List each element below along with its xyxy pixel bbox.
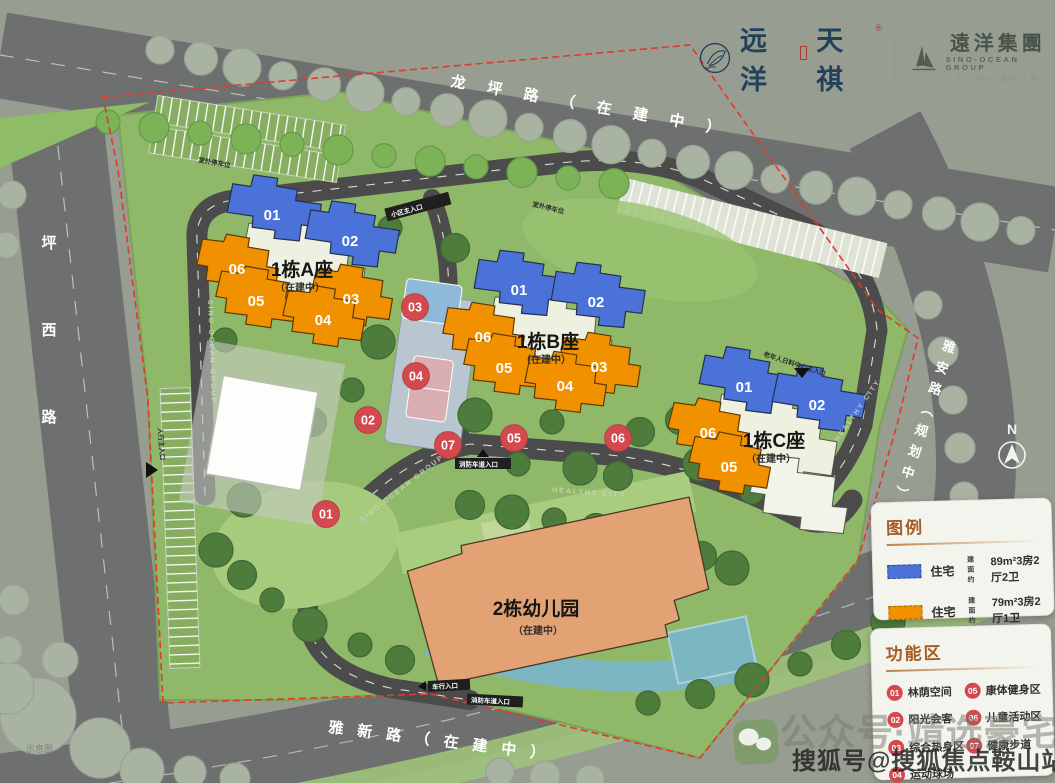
logo-divider: [894, 35, 895, 81]
tree: [392, 88, 420, 116]
leaf-logo-icon: [698, 38, 732, 78]
cluster-b-status: （在建中）: [521, 353, 571, 366]
unit-label: 02: [342, 233, 359, 250]
project-logo: 远洋 天祺 ®: [698, 19, 882, 97]
group-name: 遠洋集團: [950, 33, 1046, 56]
unit-label: 03: [343, 291, 360, 308]
tree: [188, 121, 212, 145]
tree: [486, 758, 514, 783]
legend-rule: [887, 540, 1040, 546]
tree: [715, 151, 753, 189]
tree: [441, 234, 470, 263]
tree: [340, 378, 364, 402]
unit-label: 01: [736, 379, 753, 396]
registered-mark: ®: [875, 23, 882, 33]
compass-label: N: [1007, 421, 1017, 437]
cluster-c-name: 1栋C座: [743, 429, 805, 452]
tree: [293, 608, 327, 642]
tree: [715, 551, 749, 585]
cluster-b-name: 1栋B座: [517, 330, 579, 353]
svg-text:消防车道入口: 消防车道入口: [459, 460, 498, 469]
tree: [884, 191, 912, 219]
tree: [42, 642, 78, 678]
tree: [323, 135, 353, 165]
tree: [563, 451, 597, 485]
header-logos: 远洋 天祺 ® 遠洋集團 SINO-OCEAN GROUP 共同成長 建築健康: [698, 26, 1050, 90]
unit-label: 06: [475, 329, 492, 346]
tree: [464, 155, 488, 179]
tree: [372, 144, 396, 168]
cluster-c-status: （在建中）: [746, 452, 796, 465]
unit-label: 02: [809, 397, 826, 414]
tree: [1007, 217, 1035, 245]
zones-rule: [886, 666, 1039, 672]
tree: [348, 633, 372, 657]
tree: [838, 177, 876, 215]
tree: [458, 398, 492, 432]
tree: [174, 756, 206, 783]
tree: [185, 42, 218, 75]
cluster-a-status: （在建中）: [275, 281, 325, 294]
tree: [228, 561, 257, 590]
brand-seal-mark: [800, 46, 807, 60]
tree: [923, 197, 956, 230]
tree: [638, 139, 666, 167]
unit-label: 06: [700, 425, 717, 442]
tree: [832, 631, 861, 660]
tree: [386, 646, 415, 675]
tree: [139, 113, 169, 143]
tree: [469, 100, 507, 138]
tree: [735, 663, 769, 697]
tree: [223, 48, 261, 86]
unit-label: 04: [557, 378, 574, 395]
svg-text:05: 05: [507, 432, 521, 446]
tree: [456, 491, 485, 520]
zone-item: 01林荫空间: [886, 680, 963, 704]
group-logo: 遠洋集團 SINO-OCEAN GROUP 共同成長 建築健康: [909, 33, 1050, 84]
group-name-en: SINO-OCEAN GROUP: [946, 56, 1050, 73]
service-building: [179, 340, 345, 526]
svg-text:04: 04: [409, 370, 423, 384]
tree: [260, 588, 284, 612]
tree: [0, 636, 22, 664]
zones-title: 功能区: [885, 636, 1039, 665]
unit-label: 02: [588, 294, 605, 311]
tree: [686, 680, 715, 709]
tree: [361, 325, 395, 359]
tree: [540, 410, 564, 434]
unit-label: 04: [315, 312, 332, 329]
road-label-left: 坪西路: [40, 235, 57, 496]
tree: [677, 145, 710, 178]
cluster-a-name: 1栋A座: [271, 258, 333, 281]
tree: [515, 113, 543, 141]
tree: [346, 74, 384, 112]
tree: [431, 94, 464, 127]
unit-label: 03: [591, 359, 608, 376]
marker-04: 04: [403, 363, 430, 390]
tree: [269, 62, 297, 90]
unit-label: 05: [248, 293, 265, 310]
brand-name-part1: 远洋: [740, 19, 791, 97]
svg-text:07: 07: [441, 439, 455, 453]
tree: [495, 495, 529, 529]
marker-05: 05: [501, 425, 528, 452]
tree: [554, 120, 587, 153]
marker-03: 03: [402, 294, 429, 321]
tree: [308, 68, 341, 101]
tree: [939, 386, 967, 414]
tree: [146, 36, 174, 64]
marker-07: 07: [435, 432, 462, 459]
brand-name-part2: 天祺: [816, 19, 867, 97]
site-plan-poster: 01 02 03 04 05 06 1栋A座 （在建中） 01 02 03 04…: [0, 0, 1055, 783]
unit-label: 05: [496, 360, 513, 377]
svg-text:03: 03: [408, 301, 422, 315]
tree: [556, 166, 580, 190]
tree: [199, 533, 233, 567]
svg-text:02: 02: [361, 414, 375, 428]
unit-label: 06: [229, 261, 246, 278]
tree: [415, 146, 445, 176]
zone-item: 05康体健身区: [964, 678, 1041, 702]
tree: [945, 433, 975, 463]
watermark-dark: 搜狐号@搜狐焦点鞍山站: [792, 741, 1055, 776]
legend-swatch-blue: [887, 564, 921, 579]
tree: [507, 157, 537, 187]
tree: [800, 171, 833, 204]
unit-label: 01: [511, 282, 528, 299]
tree: [231, 124, 261, 154]
kindergarten-status: （在建中）: [513, 624, 563, 637]
tree: [280, 132, 304, 156]
tree: [788, 652, 812, 676]
tree: [0, 181, 26, 209]
wechat-icon: [733, 719, 780, 766]
svg-text:06: 06: [611, 432, 625, 446]
tree: [0, 585, 29, 615]
tree: [961, 203, 999, 241]
sino-ocean-sail-icon: [909, 40, 939, 76]
legend-panel: 图例 住宅 建面约 89m²3房2厅2卫 住宅 建面约 79m²3房2厅1卫 幼…: [870, 497, 1054, 620]
legend-title: 图例: [886, 510, 1040, 539]
marker-06: 06: [605, 425, 632, 452]
unit-label: 05: [721, 459, 738, 476]
tree: [592, 126, 630, 164]
kindergarten-name: 2栋幼儿园: [493, 597, 580, 620]
unit-label: 01: [264, 207, 281, 224]
marker-02: 02: [355, 407, 382, 434]
group-tagline: 共同成長 建築健康: [955, 76, 1040, 83]
tree: [599, 169, 629, 199]
svg-text:01: 01: [319, 508, 333, 522]
marker-01: 01: [313, 501, 340, 528]
tree: [914, 291, 942, 319]
tree: [604, 462, 633, 491]
legend-swatch-orange: [888, 605, 922, 620]
legend-item-residential-89: 住宅 建面约 89m²3房2厅2卫: [887, 552, 1041, 588]
schematic-note: 示意图: [26, 743, 53, 754]
tree: [636, 691, 660, 715]
